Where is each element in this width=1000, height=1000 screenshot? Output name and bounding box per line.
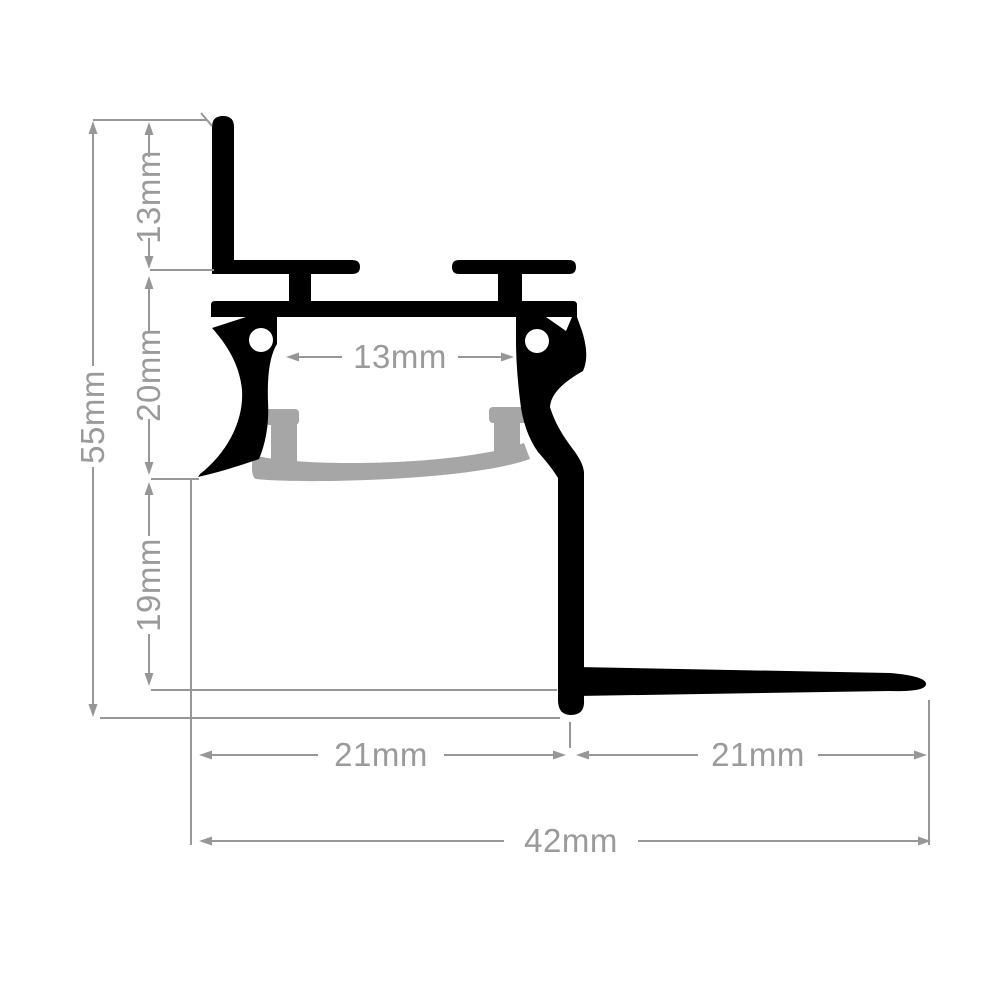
arrowhead-20-down xyxy=(145,462,154,475)
dimension-labels: 13mm 20mm 19mm 55mm 13mm 21mm 21mm 42mm xyxy=(74,150,805,859)
arrowhead-13h-left xyxy=(286,353,299,362)
profile-bottom-flange xyxy=(577,667,926,696)
label-fin-height: 13mm xyxy=(130,150,167,244)
profile-top-plate xyxy=(211,301,577,317)
profile-left-ledge xyxy=(212,260,360,274)
arrowhead-55-down xyxy=(89,704,98,717)
label-left-width: 21mm xyxy=(334,736,428,773)
profile-left-t-stem xyxy=(289,272,311,304)
arrowhead-20-up xyxy=(145,276,154,289)
arrowhead-13h-right xyxy=(501,353,514,362)
arrowhead-55-up xyxy=(89,121,98,134)
arrowhead-21r-left xyxy=(576,751,589,760)
label-overall-width: 42mm xyxy=(524,822,618,859)
profile-right-t-stem xyxy=(498,272,522,304)
label-overall-height: 55mm xyxy=(74,370,111,464)
profile-right-t-bar xyxy=(452,260,576,274)
arrowhead-21r-right xyxy=(914,751,927,760)
profile-top-fin xyxy=(212,116,234,262)
arrowhead-13v-up xyxy=(145,122,154,135)
diffuser-left-hook-stem xyxy=(271,421,297,462)
left-clip-notch xyxy=(249,328,273,352)
diffuser xyxy=(252,407,534,481)
right-clip-notch xyxy=(525,329,549,353)
label-channel-height: 20mm xyxy=(130,328,167,422)
arrowhead-13v-down xyxy=(145,256,154,269)
label-right-width: 21mm xyxy=(711,736,805,773)
arrowhead-19-up xyxy=(145,482,154,495)
arrowhead-42-left xyxy=(199,837,212,846)
label-inner-width: 13mm xyxy=(353,338,447,375)
label-recess-depth: 19mm xyxy=(130,538,167,632)
arrowhead-19-down xyxy=(145,673,154,686)
profile-cross-section-drawing: 13mm 20mm 19mm 55mm 13mm 21mm 21mm 42mm xyxy=(0,0,1000,1000)
arrowhead-21l-left xyxy=(199,751,212,760)
profile-body xyxy=(198,116,926,715)
technical-drawing-canvas: 13mm 20mm 19mm 55mm 13mm 21mm 21mm 42mm xyxy=(0,0,1000,1000)
profile-right-leg-and-stem xyxy=(516,317,586,715)
arrowhead-21l-right xyxy=(553,751,566,760)
